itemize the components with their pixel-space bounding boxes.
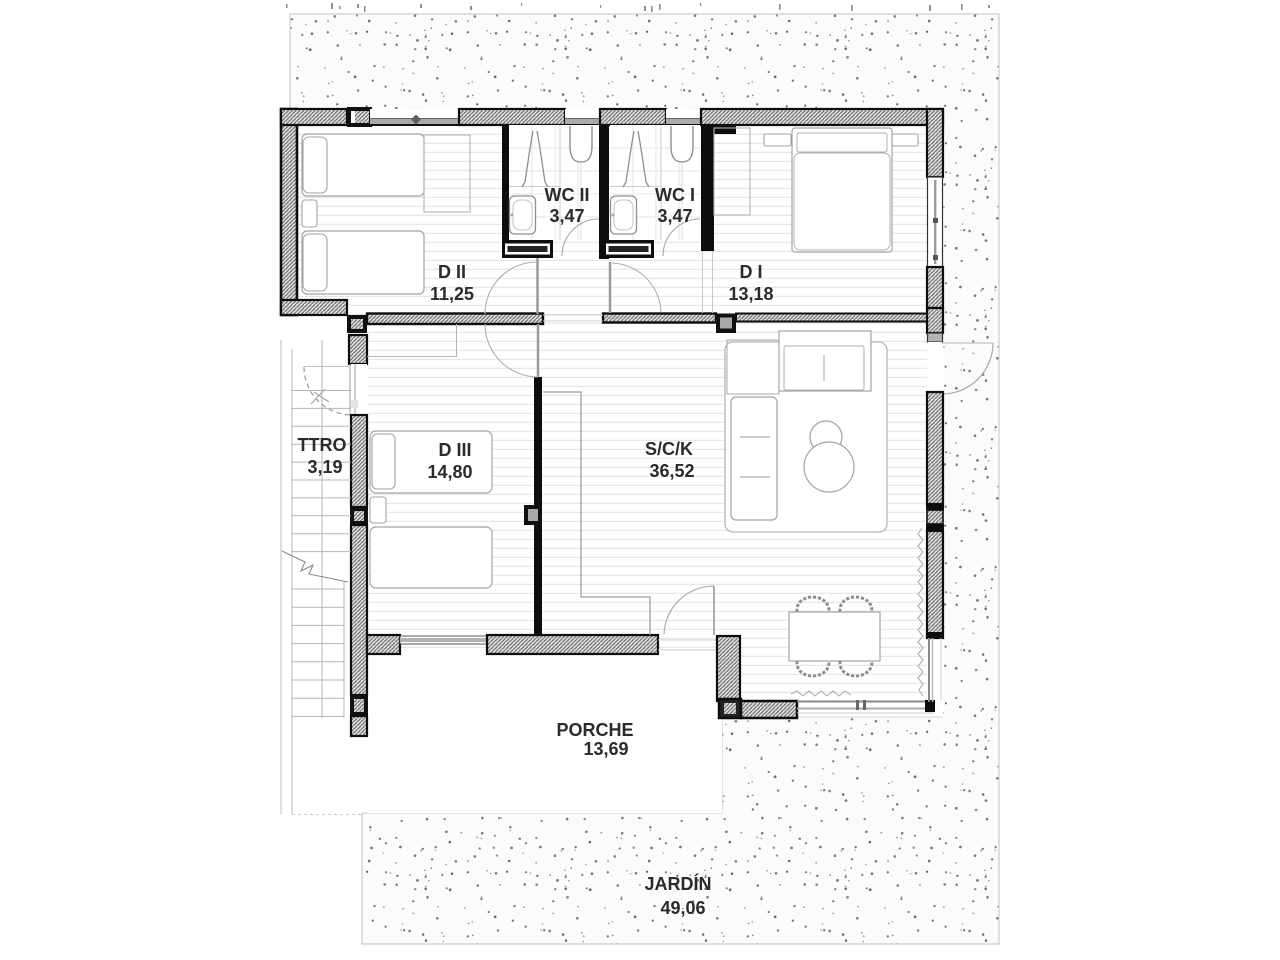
svg-text:JARDÍN: JARDÍN <box>644 873 711 894</box>
svg-text:TTRO: TTRO <box>298 435 347 455</box>
svg-text:11,25: 11,25 <box>430 284 474 304</box>
svg-text:3,47: 3,47 <box>549 206 584 226</box>
svg-text:D III: D III <box>438 440 471 460</box>
svg-text:PORCHE: PORCHE <box>556 720 633 740</box>
svg-text:S/C/K: S/C/K <box>645 439 693 459</box>
svg-text:49,06: 49,06 <box>660 898 705 918</box>
svg-text:13,69: 13,69 <box>583 739 628 759</box>
svg-text:36,52: 36,52 <box>649 461 694 481</box>
svg-text:13,18: 13,18 <box>728 284 773 304</box>
svg-text:3,47: 3,47 <box>657 206 692 226</box>
svg-text:WC II: WC II <box>545 185 590 205</box>
svg-text:D I: D I <box>739 262 762 282</box>
svg-text:WC I: WC I <box>655 185 695 205</box>
svg-text:3,19: 3,19 <box>307 457 342 477</box>
svg-text:D II: D II <box>438 262 466 282</box>
svg-text:14,80: 14,80 <box>427 462 472 482</box>
